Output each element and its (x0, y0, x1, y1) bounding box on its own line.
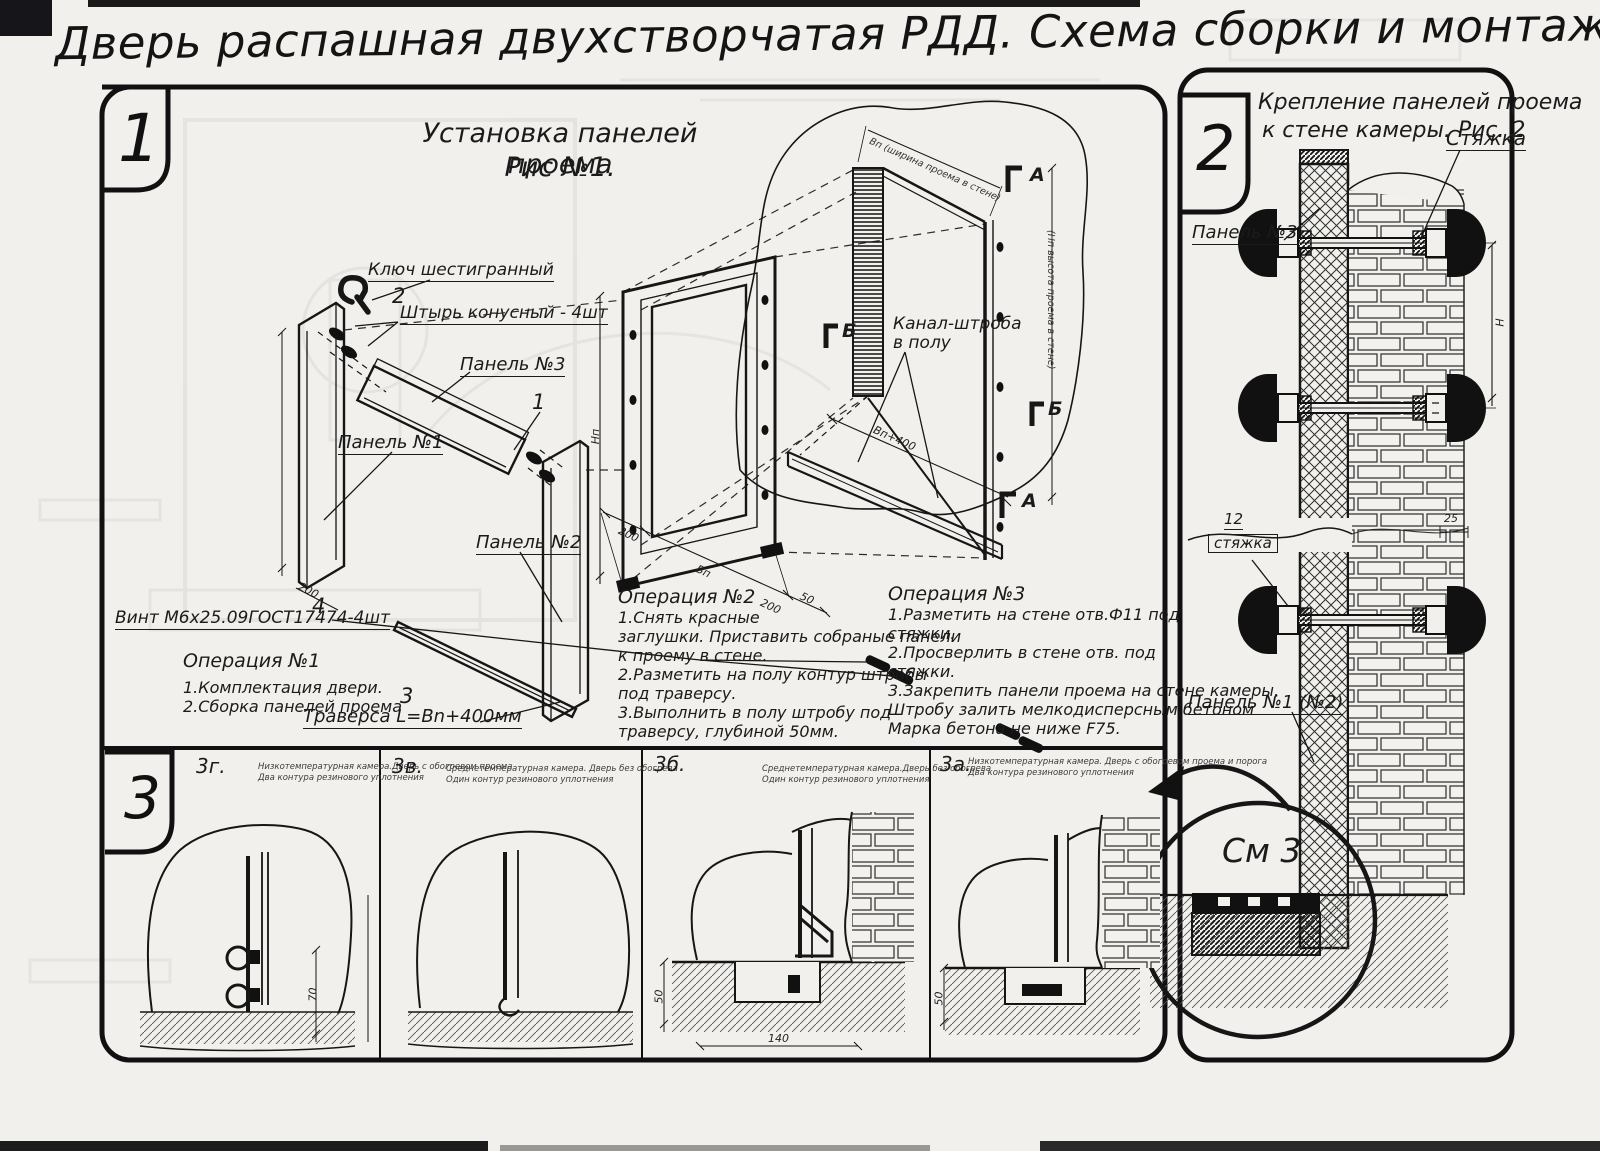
scanned-drawing-sheet: Дверь распашная двухстворчатая РДД. Схем… (0, 0, 1600, 1151)
dim-140-3b: 140 (768, 1032, 789, 1045)
op3-title: Операция №3 (888, 583, 1025, 605)
caption-line: Один контур резинового уплотнения (762, 775, 991, 786)
dim-h-wall: Н (1494, 318, 1507, 326)
section-3v-id: 3в. (392, 754, 423, 778)
panel3-number: 3 (124, 764, 161, 832)
label-panel1: Панель №1 (338, 434, 443, 455)
label-panel3-wall: Панель №3 (1192, 224, 1297, 245)
dim-50-3b: 50 (653, 990, 666, 1004)
dim-np-frame: Нп (589, 429, 602, 444)
op3-line1: 1.Разметить на стене отв.Ф11 под (888, 605, 1180, 625)
op3-line3: 2.Просверлить в стене отв. под (888, 643, 1156, 663)
fig2-title-line1: Крепление панелей проема (1258, 92, 1582, 114)
label-traverse: Траверса L=Bn+400мм (303, 708, 522, 729)
label-pin: Штырь конусный - 4шт (400, 305, 608, 325)
dim-opening-height: (Нп высота проема в стене) (1045, 230, 1056, 369)
op2-line4: 2.Разметить на полу контур штробы (618, 665, 927, 685)
op2-title: Операция №2 (618, 586, 755, 608)
label-screw: Винт М6х25.09ГОСТ17474-4шт (115, 610, 390, 630)
op2-line3: к проему в стене. (618, 646, 768, 666)
section-3g-id: 3г. (196, 754, 226, 778)
item-12: 12 (1224, 512, 1243, 530)
label-tie: Стяжка (1446, 128, 1526, 151)
item-1: 1 (532, 392, 545, 413)
op3-line7: Марка бетона не ниже F75. (888, 719, 1121, 739)
section-marker-a-bottom: А (1022, 490, 1037, 512)
section-marker-b-left: Б (842, 320, 856, 342)
label-see-3: См 3 (1222, 834, 1301, 867)
label-hex-key: Ключ шестигранный (368, 262, 554, 282)
op1-line1: 1.Комплектация двери. (183, 678, 383, 698)
label-panel1-2: Панель №1 (№2) (1188, 694, 1343, 715)
panel1-number: 1 (118, 100, 160, 177)
fig1-title-line2: Рис №1. (375, 152, 745, 183)
label-tie-word: стяжка (1208, 534, 1278, 553)
op2-line5: под траверсу. (618, 684, 736, 704)
section-marker-a-top: А (1030, 164, 1045, 186)
dim-50-3a: 50 (933, 992, 946, 1006)
op2-line1: 1.Снять красные (618, 608, 760, 628)
section-marker-b-right: Б (1048, 398, 1062, 420)
panel2-drawing (1141, 150, 1496, 1037)
label-channel-line2: в полу (893, 335, 951, 352)
label-panel2: Панель №2 (476, 534, 581, 555)
caption-line: Среднетемпературная камера. Дверь без об… (446, 764, 678, 775)
item-3: 3 (400, 686, 413, 707)
panel3-drawings (140, 812, 1160, 1051)
caption-line: Низкотемпературная камера. Дверь с обогр… (968, 757, 1267, 768)
section-3a-caption: Низкотемпературная камера. Дверь с обогр… (968, 757, 1267, 779)
op2-line7: траверсу, глубиной 50мм. (618, 722, 839, 742)
panel2-number: 2 (1196, 112, 1235, 185)
dim-70-3g: 70 (307, 988, 320, 1002)
label-panel3: Панель №3 (460, 356, 565, 377)
caption-line: Один контур резинового уплотнения (446, 775, 678, 786)
op2-line6: 3.Выполнить в полу штробу под (618, 703, 891, 723)
section-3b-id: 3б. (654, 752, 685, 776)
dim-25: 25 (1444, 512, 1458, 525)
section-3a-id: 3а. (940, 752, 971, 776)
op3-line2: стяжки. (888, 624, 955, 644)
label-channel-line1: Канал-штроба (893, 316, 1022, 333)
op3-line4: стяжки. (888, 662, 955, 682)
op1-title: Операция №1 (183, 650, 320, 672)
section-3v-caption: Среднетемпературная камера. Дверь без об… (446, 764, 678, 786)
caption-line: Два контура резинового уплотнения (968, 768, 1267, 779)
drawing-canvas (0, 0, 1600, 1151)
